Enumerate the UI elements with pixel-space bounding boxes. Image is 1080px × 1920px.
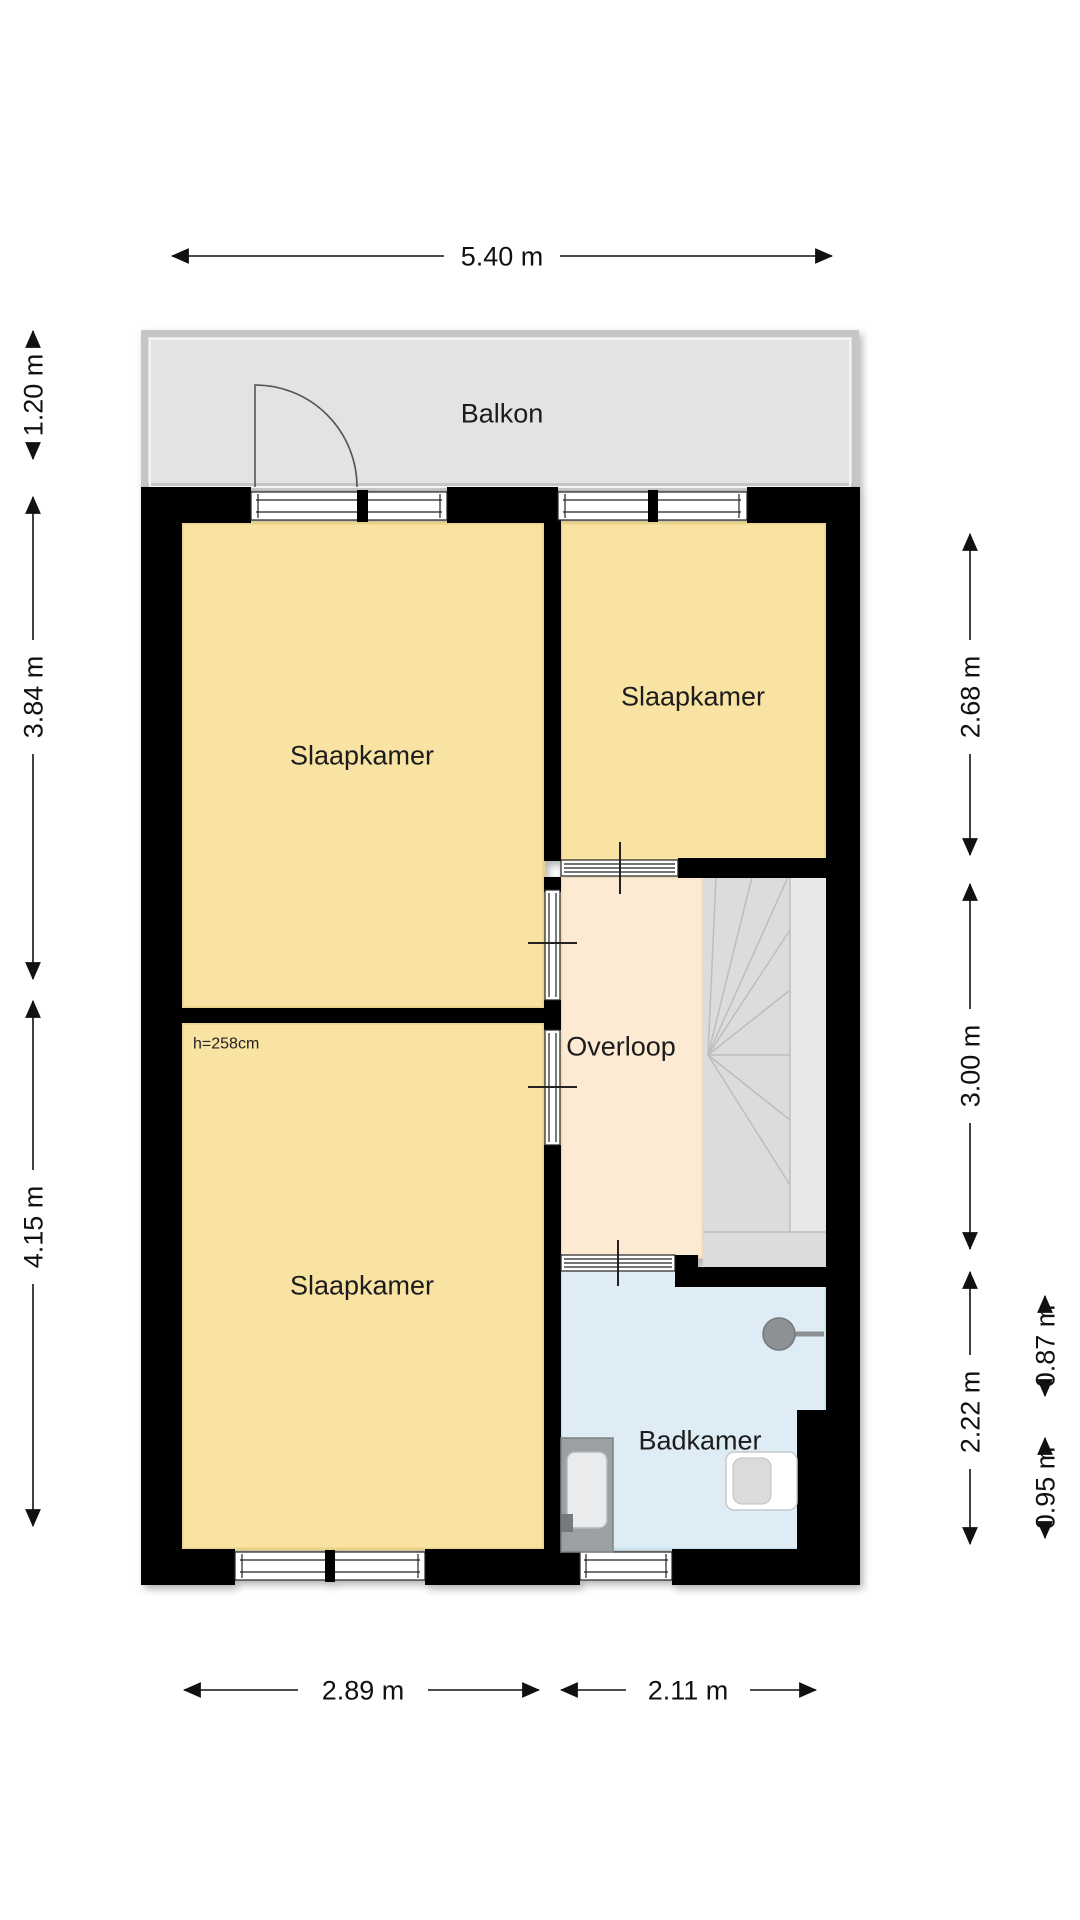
dim-right-top-bedroom: 2.68 m xyxy=(955,534,985,855)
bottom-window-bathroom xyxy=(580,1552,672,1580)
dim-bottom-bathroom: 2.11 m xyxy=(561,1675,816,1705)
dim-right-bathroom: 2.22 m xyxy=(955,1272,985,1544)
dim-right-top-bedroom-label: 2.68 m xyxy=(955,656,985,739)
floor-plan-page: Balkon Slaapkamer Slaapkamer Slaapkamer … xyxy=(0,0,1080,1920)
dim-right-landing: 3.00 m xyxy=(955,884,985,1249)
dim-bottom-bathroom-label: 2.11 m xyxy=(648,1675,729,1705)
dim-left-top-bedroom-label: 3.84 m xyxy=(18,656,48,739)
dim-top-width: 5.40 m xyxy=(172,241,832,271)
dim-right-landing-label: 3.00 m xyxy=(955,1025,985,1108)
top-window xyxy=(558,490,747,522)
overloop-label: Overloop xyxy=(566,1031,676,1061)
dim-left-balcony-label: 1.20 m xyxy=(18,354,48,437)
slaapkamer-bottom-left-label: Slaapkamer xyxy=(290,1270,434,1300)
dim-bottom-bedroom-label: 2.89 m xyxy=(322,1675,405,1705)
dim-right-bathroom-label: 2.22 m xyxy=(955,1371,985,1454)
dim-left-bottom-bedroom-label: 4.15 m xyxy=(18,1186,48,1269)
badkamer-label: Badkamer xyxy=(638,1425,761,1455)
dim-left-top-bedroom: 3.84 m xyxy=(18,497,48,979)
room-overloop xyxy=(561,877,703,1257)
balkon-label: Balkon xyxy=(461,398,544,428)
dim-right-niche-top: 0.87 m xyxy=(1030,1296,1060,1396)
floor-plan-canvas: Balkon Slaapkamer Slaapkamer Slaapkamer … xyxy=(0,0,1080,1920)
staircase-icon xyxy=(703,877,826,1267)
dim-bottom-bedroom: 2.89 m xyxy=(184,1675,539,1705)
ceiling-height-note: h=258cm xyxy=(193,1036,259,1053)
dim-right-niche-bottom: 0.95 m xyxy=(1030,1438,1060,1538)
slaapkamer-top-left-label: Slaapkamer xyxy=(290,740,434,770)
dim-right-niche-top-label: 0.87 m xyxy=(1030,1305,1060,1388)
dim-top-width-label: 5.40 m xyxy=(461,241,544,271)
balcony-door-window xyxy=(251,490,447,522)
dim-left-bottom-bedroom: 4.15 m xyxy=(18,1001,48,1526)
sink-vanity-icon xyxy=(561,1438,613,1552)
dim-right-niche-bottom-label: 0.95 m xyxy=(1030,1447,1060,1530)
floor-plan-body: Balkon Slaapkamer Slaapkamer Slaapkamer … xyxy=(141,330,860,1585)
bottom-window-left xyxy=(235,1550,425,1582)
toilet-icon xyxy=(726,1452,797,1510)
slaapkamer-top-right-label: Slaapkamer xyxy=(621,681,765,711)
dim-left-balcony: 1.20 m xyxy=(18,331,48,459)
